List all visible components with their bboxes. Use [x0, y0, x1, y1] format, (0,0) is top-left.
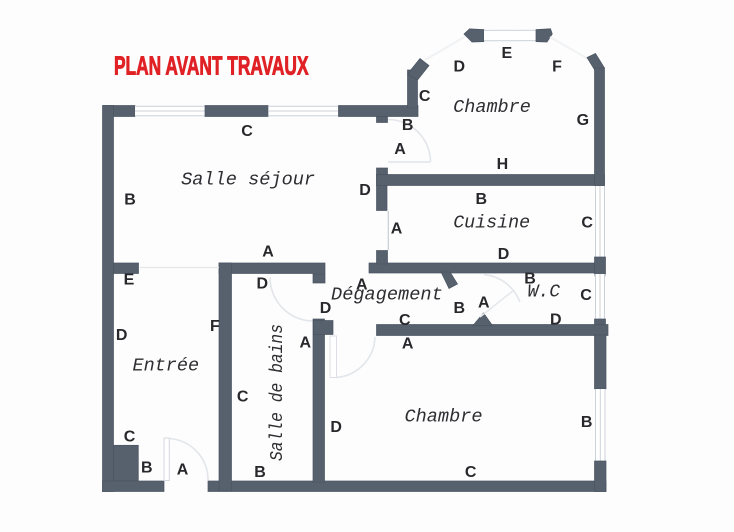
svg-text:F: F — [552, 59, 562, 76]
svg-text:D: D — [116, 327, 128, 344]
svg-text:A: A — [478, 295, 490, 312]
svg-text:C: C — [465, 464, 477, 481]
svg-text:E: E — [124, 272, 135, 289]
svg-text:D: D — [359, 182, 371, 199]
svg-text:D: D — [257, 276, 269, 293]
svg-text:D: D — [330, 419, 342, 436]
svg-text:C: C — [124, 429, 136, 446]
svg-text:B: B — [476, 191, 488, 208]
svg-text:C: C — [237, 389, 249, 406]
svg-text:D: D — [320, 300, 332, 317]
svg-text:B: B — [124, 192, 136, 209]
svg-text:B: B — [581, 414, 593, 431]
svg-text:A: A — [391, 221, 403, 238]
svg-text:A: A — [262, 243, 274, 260]
svg-text:Salle de bains: Salle de bains — [267, 324, 288, 461]
svg-text:D: D — [550, 312, 562, 329]
svg-text:E: E — [501, 45, 512, 62]
svg-text:A: A — [300, 335, 312, 352]
svg-text:Cuisine: Cuisine — [453, 213, 530, 234]
svg-text:D: D — [498, 246, 510, 263]
svg-text:H: H — [497, 156, 509, 173]
svg-text:Chambre: Chambre — [453, 97, 531, 118]
svg-text:Salle séjour: Salle séjour — [181, 170, 315, 191]
svg-text:Entrée: Entrée — [133, 356, 200, 377]
svg-text:A: A — [177, 461, 189, 478]
svg-text:B: B — [402, 117, 414, 134]
svg-text:B: B — [524, 270, 536, 287]
svg-text:A: A — [356, 277, 368, 294]
svg-text:C: C — [399, 312, 411, 329]
svg-text:Chambre: Chambre — [405, 407, 483, 428]
svg-text:C: C — [419, 88, 431, 105]
svg-text:F: F — [210, 318, 220, 335]
svg-text:B: B — [141, 460, 153, 477]
svg-text:PLAN AVANT TRAVAUX: PLAN AVANT TRAVAUX — [114, 51, 309, 81]
svg-text:A: A — [394, 141, 406, 158]
svg-text:B: B — [454, 300, 466, 317]
svg-text:G: G — [577, 112, 589, 129]
svg-text:C: C — [241, 123, 253, 140]
svg-text:B: B — [254, 464, 266, 481]
svg-text:C: C — [581, 215, 593, 232]
svg-text:C: C — [580, 287, 592, 304]
svg-text:D: D — [454, 59, 466, 76]
svg-text:Dégagement: Dégagement — [331, 284, 443, 305]
svg-text:A: A — [402, 336, 414, 353]
